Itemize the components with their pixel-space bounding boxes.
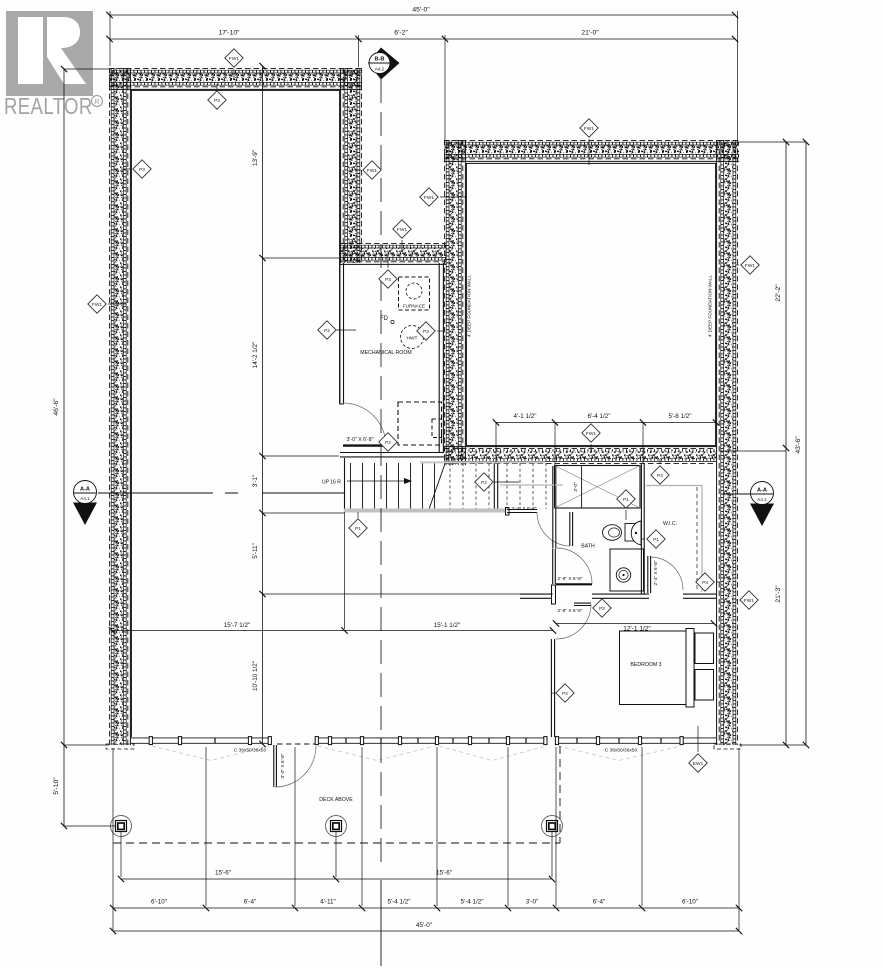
svg-text:3'-0": 3'-0" — [526, 899, 539, 906]
svg-text:FW1: FW1 — [367, 168, 377, 174]
svg-text:6'-10": 6'-10" — [682, 899, 698, 906]
svg-text:6'-2": 6'-2" — [394, 30, 408, 37]
svg-text:13'-9": 13'-9" — [252, 150, 259, 166]
svg-text:P2: P2 — [562, 691, 568, 697]
svg-text:EW1: EW1 — [693, 761, 704, 767]
svg-text:P2: P2 — [481, 480, 487, 486]
svg-text:DECK ABOVE: DECK ABOVE — [319, 797, 353, 803]
svg-text:45'-0": 45'-0" — [416, 922, 432, 929]
svg-text:6'-4 1/2": 6'-4 1/2" — [587, 413, 610, 420]
svg-text:6'-4": 6'-4" — [593, 899, 606, 906]
svg-text:P3: P3 — [139, 167, 145, 173]
svg-text:2'-4" X 6'-8": 2'-4" X 6'-8" — [512, 506, 537, 512]
svg-text:C 36x50/36x50: C 36x50/36x50 — [605, 748, 638, 754]
svg-text:4' DEEP FOUNDATION WALL: 4' DEEP FOUNDATION WALL — [467, 275, 472, 337]
svg-text:FW1: FW1 — [229, 56, 239, 62]
svg-text:5'-10": 5'-10" — [53, 777, 60, 795]
svg-text:17'-10": 17'-10" — [218, 30, 240, 37]
svg-text:15'-1 1/2": 15'-1 1/2" — [434, 622, 461, 629]
svg-text:22'-2": 22'-2" — [775, 284, 782, 302]
svg-text:FW1: FW1 — [92, 302, 102, 308]
svg-text:FURNACE: FURNACE — [403, 304, 425, 309]
svg-text:5'-11": 5'-11" — [252, 543, 259, 559]
svg-text:2'-8" X 6'-8": 2'-8" X 6'-8" — [558, 576, 583, 582]
svg-text:REALTOR: REALTOR — [4, 94, 93, 120]
svg-text:15'-7 1/2": 15'-7 1/2" — [224, 622, 251, 629]
svg-text:4' DEEP FOUNDATION WALL: 4' DEEP FOUNDATION WALL — [708, 275, 713, 337]
svg-text:HWT: HWT — [407, 336, 418, 342]
svg-text:P2: P2 — [599, 606, 605, 612]
svg-text:P2: P2 — [324, 328, 330, 334]
svg-text:P3: P3 — [214, 98, 220, 104]
svg-text:C 36x50/36x50: C 36x50/36x50 — [234, 748, 267, 754]
svg-text:P3: P3 — [385, 277, 391, 283]
svg-text:FW1: FW1 — [586, 431, 596, 437]
svg-text:2'-8" X 6'-8": 2'-8" X 6'-8" — [558, 608, 583, 614]
svg-text:10'-10 1/2": 10'-10 1/2" — [252, 661, 259, 691]
svg-text:45'-0": 45'-0" — [412, 7, 430, 14]
svg-text:3'-0" X 6'-8": 3'-0" X 6'-8" — [346, 437, 373, 443]
svg-text:P1: P1 — [653, 537, 659, 543]
svg-text:A-A: A-A — [757, 488, 767, 494]
svg-text:P1: P1 — [623, 497, 629, 503]
svg-text:46'-6": 46'-6" — [53, 398, 60, 416]
svg-text:4'-1 1/2": 4'-1 1/2" — [513, 413, 536, 420]
svg-text:5'-4 1/2": 5'-4 1/2" — [387, 899, 410, 906]
svg-text:6'-4": 6'-4" — [244, 899, 257, 906]
svg-text:FW1: FW1 — [397, 227, 407, 233]
svg-text:BATH: BATH — [581, 544, 595, 550]
svg-text:A4.1: A4.1 — [80, 496, 90, 501]
svg-text:12'-1 1/2": 12'-1 1/2" — [623, 626, 651, 633]
svg-text:FW1: FW1 — [424, 195, 434, 201]
svg-text:W.I.C.: W.I.C. — [663, 521, 677, 527]
svg-text:5'-4 1/2": 5'-4 1/2" — [460, 899, 483, 906]
svg-text:6'-10": 6'-10" — [151, 899, 167, 906]
svg-text:R: R — [94, 97, 100, 106]
svg-text:3'-1": 3'-1" — [252, 475, 259, 488]
svg-text:FW1: FW1 — [584, 126, 594, 132]
svg-text:MECHANICAL ROOM: MECHANICAL ROOM — [360, 350, 411, 356]
svg-text:2'-4" X 6'-8": 2'-4" X 6'-8" — [653, 560, 659, 585]
svg-text:15'-6": 15'-6" — [215, 870, 231, 877]
svg-text:FW1: FW1 — [745, 263, 755, 269]
svg-text:P3: P3 — [702, 580, 708, 586]
svg-text:14'-2 1/2": 14'-2 1/2" — [252, 342, 259, 369]
svg-text:43'-6": 43'-6" — [795, 436, 802, 454]
svg-text:A4.2: A4.2 — [375, 67, 385, 72]
svg-text:A-A: A-A — [80, 487, 90, 493]
svg-text:A4.1: A4.1 — [757, 497, 767, 502]
svg-text:B-B: B-B — [375, 57, 385, 63]
svg-text:5'-8 1/2": 5'-8 1/2" — [668, 413, 691, 420]
svg-text:BEDROOM 3: BEDROOM 3 — [630, 662, 661, 668]
svg-text:3'-0" X 6'-8": 3'-0" X 6'-8" — [280, 753, 286, 778]
svg-text:P1: P1 — [355, 526, 361, 532]
svg-text:21'-3": 21'-3" — [775, 585, 782, 603]
svg-text:21'-0": 21'-0" — [581, 30, 599, 37]
svg-text:4'-11": 4'-11" — [320, 899, 336, 906]
svg-text:P3: P3 — [657, 473, 663, 479]
svg-text:3'-0": 3'-0" — [573, 482, 579, 492]
svg-text:P3: P3 — [423, 329, 429, 335]
svg-text:FW1: FW1 — [744, 598, 754, 604]
svg-text:UP 16 R: UP 16 R — [322, 480, 341, 486]
svg-text:15'-6": 15'-6" — [436, 870, 452, 877]
svg-text:P2: P2 — [385, 440, 391, 446]
